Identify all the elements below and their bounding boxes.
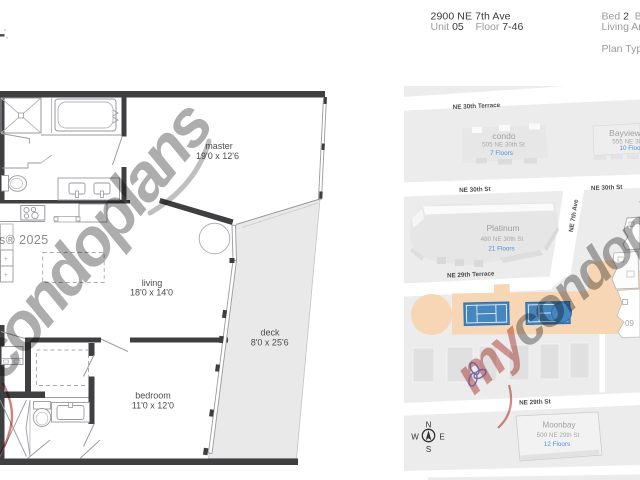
svg-text:s® 2025: s® 2025	[0, 233, 49, 247]
svg-text:W: W	[411, 433, 419, 442]
svg-text:+: +	[4, 257, 8, 263]
svg-text:living: living	[142, 278, 163, 288]
svg-text:NE 30th St: NE 30th St	[459, 186, 492, 194]
svg-text:bedroom: bedroom	[135, 391, 171, 401]
svg-text:Bayview: Bayview	[609, 128, 640, 138]
svg-text:8'0 x 25'6: 8'0 x 25'6	[251, 338, 289, 348]
svg-text:NE 30th St: NE 30th St	[591, 184, 624, 192]
svg-text:N: N	[426, 421, 432, 430]
svg-text:500 NE 29th St: 500 NE 29th St	[537, 432, 580, 439]
svg-text:18'0 x 14'0: 18'0 x 14'0	[130, 288, 173, 298]
svg-text:Platinum: Platinum	[486, 223, 519, 233]
svg-text:7 Floors: 7 Floors	[490, 150, 513, 157]
svg-text:E: E	[439, 433, 444, 442]
svg-text:505 NE 30th St: 505 NE 30th St	[482, 142, 525, 149]
svg-text:12 Floors: 12 Floors	[544, 441, 570, 448]
svg-text:Moonbay: Moonbay	[543, 421, 576, 430]
svg-text:+: +	[4, 273, 8, 279]
svg-text:21 Floors: 21 Floors	[488, 246, 514, 253]
svg-text:condo: condo	[492, 131, 515, 141]
svg-text:11'0 x 12'0: 11'0 x 12'0	[132, 401, 174, 411]
svg-text:10 Floo: 10 Floo	[619, 145, 640, 152]
svg-text:480 NE 30th St: 480 NE 30th St	[481, 236, 524, 243]
svg-text:Unit 05 Floor 7-46: Unit 05 Floor 7-46	[431, 21, 524, 33]
svg-text:NE 29th St: NE 29th St	[519, 398, 552, 406]
svg-text:deck: deck	[260, 328, 280, 338]
svg-text:Living Area: Living Area	[602, 21, 640, 33]
svg-text:S: S	[426, 445, 431, 454]
svg-text:09: 09	[625, 319, 634, 328]
svg-text:Plan Type: Plan Type	[602, 43, 640, 55]
